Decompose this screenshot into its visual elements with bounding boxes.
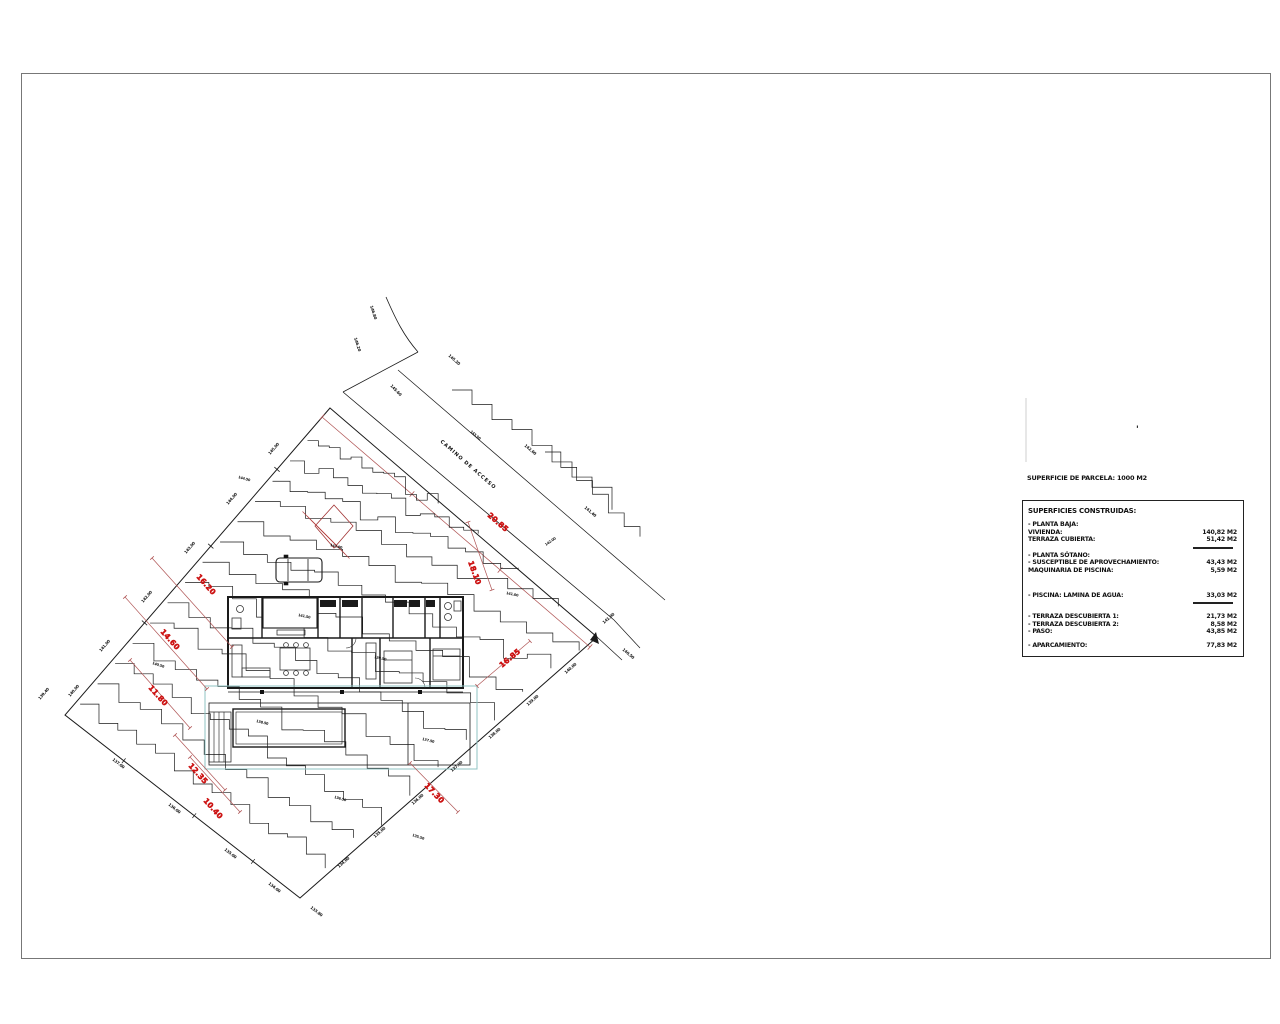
- elevation-label: 137.00: [449, 759, 463, 772]
- surface-value: 43,85 M2: [1191, 628, 1237, 636]
- contour-label: 143.50: [469, 430, 482, 441]
- surface-row: - TERRAZA DESCUBIERTA 2:8,58 M2: [1028, 621, 1237, 629]
- parcel-area-title: SUPERFICIE DE PARCELA: 1000 M2: [1027, 474, 1244, 482]
- road-name: CAMINO DE ACCESO: [439, 439, 498, 491]
- elevation-label: 145.20: [447, 353, 461, 366]
- elevation-label: 141.00: [601, 611, 615, 624]
- surface-label: - TERRAZA DESCUBIERTA 2:: [1028, 621, 1119, 629]
- elevation-label: 143.00: [183, 540, 196, 554]
- red-dimension-label: 12.35: [187, 761, 210, 785]
- contour-label: 136.50: [334, 795, 348, 802]
- elevation-label: 146.20: [353, 337, 362, 352]
- summary-table: SUPERFICIE DE PARCELA: 1000 M2 SUPERFICI…: [1022, 474, 1244, 657]
- surface-value: 5,59 M2: [1191, 567, 1237, 575]
- surface-row: - TERRAZA DESCUBIERTA 1:21,73 M2: [1028, 613, 1237, 621]
- elevation-label: 142.00: [140, 589, 153, 603]
- elevation-label: 134.00: [336, 855, 350, 868]
- surface-value: [1191, 552, 1237, 560]
- road: [343, 297, 665, 660]
- elevation-label: 145.60: [389, 383, 403, 397]
- surface-value: 140,82 M2: [1191, 529, 1237, 537]
- red-dimension-label: 16.20: [195, 572, 218, 596]
- surface-label: - PISCINA: LAMINA DE AGUA:: [1028, 592, 1123, 600]
- contour-elevation-labels: 144.50143.00141.50140.50139.50138.50137.…: [152, 430, 558, 841]
- elevation-label: 140.50: [621, 647, 635, 660]
- elevation-label: 140.00: [563, 661, 577, 674]
- elevation-label: 135.00: [372, 825, 386, 838]
- contour-label: 135.50: [412, 833, 426, 841]
- red-dimension-label: 20.85: [486, 511, 511, 534]
- surface-row: VIVIENDA:140,82 M2: [1028, 529, 1237, 537]
- corner-mark: ': [1136, 425, 1139, 435]
- contour-lines: [80, 441, 579, 868]
- surface-value: 43,43 M2: [1191, 559, 1237, 567]
- surface-row: - PLANTA SÓTANO:: [1028, 552, 1237, 560]
- elevation-label: 142.60: [523, 443, 537, 456]
- hatched-area: [303, 505, 354, 559]
- surface-label: - PASO:: [1028, 628, 1052, 636]
- surface-value: 33,03 M2: [1191, 592, 1237, 600]
- red-dimension-label: 18.10: [466, 560, 483, 586]
- elevation-label: 146.80: [369, 305, 378, 320]
- surface-row: - SUSCEPTIBLE DE APROVECHAMIENTO:43,43 M…: [1028, 559, 1237, 567]
- elevation-label: 141.00: [98, 638, 111, 652]
- surface-value: 21,73 M2: [1191, 613, 1237, 621]
- elevation-label: 141.40: [583, 505, 597, 518]
- surface-row: - PLANTA BAJA:: [1028, 521, 1237, 529]
- elevation-label: 135.00: [223, 847, 238, 860]
- elevation-label: 139.40: [37, 686, 50, 700]
- built-surfaces-heading: SUPERFICIES CONSTRUIDAS:: [1028, 507, 1237, 515]
- red-dimension-label: 11.80: [147, 683, 170, 707]
- surface-row: - PASO:43,85 M2: [1028, 628, 1237, 636]
- subtotal-rule: [1193, 602, 1233, 604]
- dimension-labels: 14.6016.2011.8020.8518.1016.8517.3012.35…: [147, 511, 523, 821]
- elevation-label: 144.00: [225, 491, 238, 505]
- surface-value: 51,42 M2: [1191, 536, 1237, 544]
- surface-row: - APARCAMIENTO:77,83 M2: [1028, 642, 1237, 650]
- surface-label: - PLANTA SÓTANO:: [1028, 552, 1090, 560]
- contour-label: 138.50: [256, 719, 270, 726]
- surface-label: - APARCAMIENTO:: [1028, 642, 1087, 650]
- surface-label: - PLANTA BAJA:: [1028, 521, 1078, 529]
- surface-label: TERRAZA CUBIERTA:: [1028, 536, 1095, 544]
- road-name-label: CAMINO DE ACCESO: [439, 439, 498, 491]
- pool-terrace: [205, 686, 477, 769]
- elevation-label: 137.00: [111, 757, 126, 770]
- surface-value: [1191, 521, 1237, 529]
- elevation-label: 133.80: [309, 905, 324, 918]
- subtotal-rule: [1193, 547, 1233, 549]
- surface-label: - SUSCEPTIBLE DE APROVECHAMIENTO:: [1028, 559, 1159, 567]
- surface-label: - TERRAZA DESCUBIERTA 1:: [1028, 613, 1119, 621]
- surface-value: 77,83 M2: [1191, 642, 1237, 650]
- red-dimension-label: 17.30: [423, 781, 447, 805]
- surface-value: 8,58 M2: [1191, 621, 1237, 629]
- contour-label: 143.00: [330, 543, 344, 550]
- elevation-labels: 145.00144.00143.00142.00141.00140.00140.…: [37, 305, 636, 918]
- surface-row: TERRAZA CUBIERTA:51,42 M2: [1028, 536, 1237, 544]
- surface-row: MAQUINARIA DE PISCINA:5,59 M2: [1028, 567, 1237, 575]
- elevation-label: 140.00: [67, 683, 80, 697]
- surface-label: VIVIENDA:: [1028, 529, 1062, 537]
- elevation-label: 138.00: [487, 726, 501, 739]
- surface-row: - PISCINA: LAMINA DE AGUA:33,03 M2: [1028, 592, 1237, 600]
- contour-label: 137.50: [422, 737, 436, 744]
- contour-label: 142.00: [544, 536, 557, 547]
- red-dimension-label: 10.40: [202, 796, 225, 820]
- elevation-label: 139.00: [525, 693, 539, 706]
- elevation-label: 145.00: [267, 441, 280, 455]
- built-surfaces-box: SUPERFICIES CONSTRUIDAS: - PLANTA BAJA:V…: [1022, 500, 1244, 657]
- surface-label: MAQUINARIA DE PISCINA:: [1028, 567, 1113, 575]
- contour-label: 144.50: [238, 475, 252, 482]
- contour-label: 141.00: [506, 591, 520, 598]
- misc-marks: ': [1026, 398, 1139, 462]
- contour-label: 140.50: [152, 661, 166, 669]
